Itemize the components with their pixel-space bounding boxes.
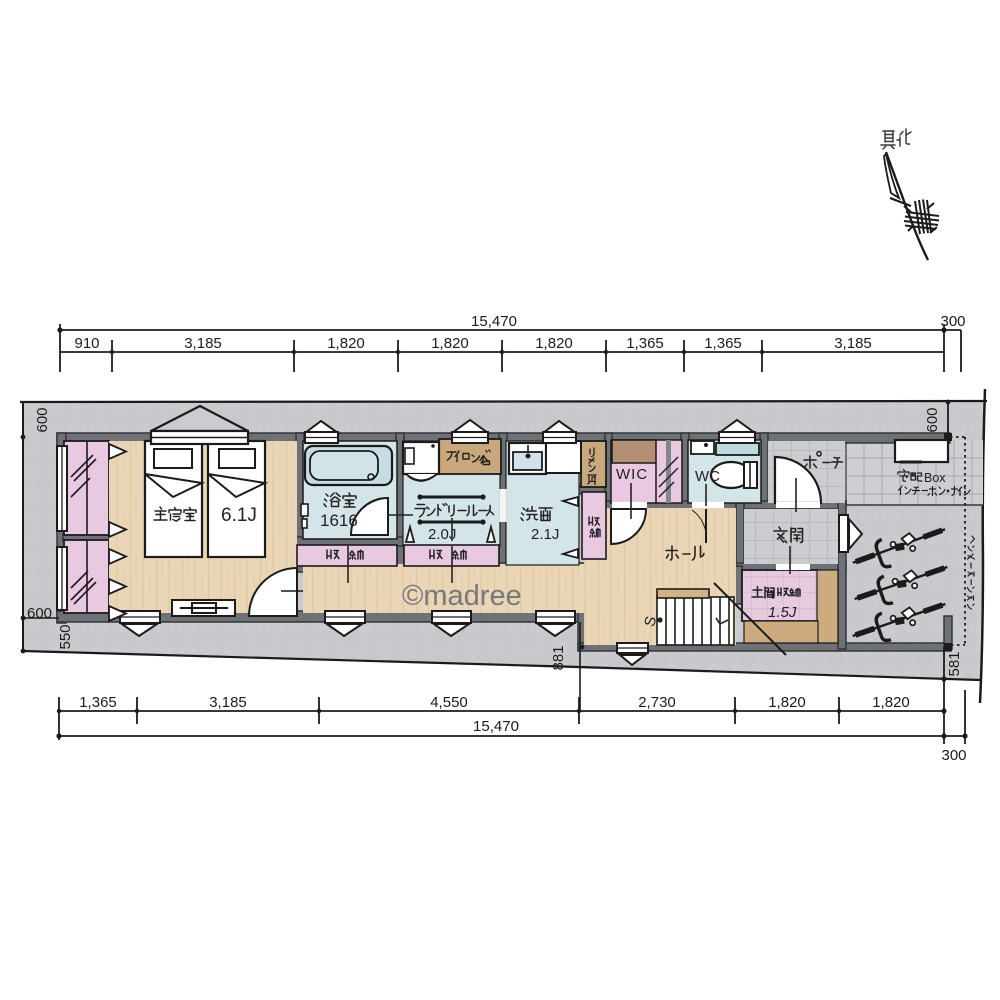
- svg-text:WIC: WIC: [616, 466, 648, 483]
- svg-text:3,185: 3,185: [184, 335, 222, 352]
- svg-text:1,820: 1,820: [431, 335, 469, 352]
- svg-text:6.1J: 6.1J: [221, 505, 257, 526]
- svg-text:300: 300: [941, 747, 966, 764]
- svg-text:550: 550: [57, 624, 74, 649]
- svg-text:300: 300: [940, 313, 965, 330]
- svg-text:1616: 1616: [320, 511, 358, 530]
- svg-text:2,730: 2,730: [638, 694, 676, 711]
- svg-text:881: 881: [550, 645, 567, 670]
- svg-text:4,550: 4,550: [430, 694, 468, 711]
- svg-text:15,470: 15,470: [473, 718, 519, 735]
- svg-text:581: 581: [946, 651, 963, 676]
- svg-text:1,820: 1,820: [327, 335, 365, 352]
- svg-text:WC: WC: [695, 468, 720, 485]
- svg-text:1,820: 1,820: [872, 694, 910, 711]
- svg-text:600: 600: [27, 605, 52, 622]
- svg-text:1.5J: 1.5J: [768, 604, 797, 621]
- svg-text:1,820: 1,820: [535, 335, 573, 352]
- svg-text:1,365: 1,365: [704, 335, 742, 352]
- svg-text:1,365: 1,365: [79, 694, 117, 711]
- svg-text:600: 600: [34, 407, 51, 432]
- svg-text:Box: Box: [924, 471, 946, 485]
- svg-text:2.1J: 2.1J: [531, 526, 559, 543]
- svg-text:©madree: ©madree: [402, 580, 522, 612]
- svg-text:15,470: 15,470: [471, 313, 517, 330]
- svg-text:910: 910: [74, 335, 99, 352]
- svg-text:1,820: 1,820: [768, 694, 806, 711]
- svg-text:1,365: 1,365: [626, 335, 664, 352]
- svg-text:600: 600: [924, 407, 941, 432]
- svg-text:3,185: 3,185: [834, 335, 872, 352]
- svg-text:3,185: 3,185: [209, 694, 247, 711]
